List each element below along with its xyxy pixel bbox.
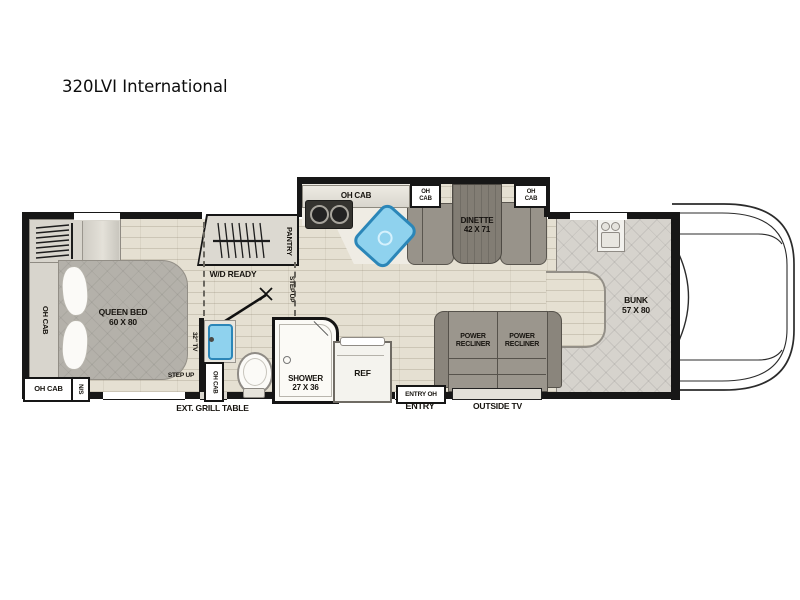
queen-bed-dims: 60 X 80 [88,318,158,328]
bedroom-oh-cab-side: OH CAB [29,262,61,378]
step-boundary-line [203,222,205,316]
window-bunk-top [570,212,627,220]
window-bedroom-bottom [103,392,185,400]
faucet-knob-icon [601,222,610,231]
dinette-dims: 42 X 71 [447,226,507,235]
ref-handle [340,337,385,346]
bunk-dims: 57 X 80 [600,306,672,316]
shower-label: SHOWER 27 X 36 [275,375,336,393]
recliner-left-label: POWER RECLINER [451,333,495,349]
hangers-icon [33,221,83,261]
faucet-knob-icon [611,222,620,231]
ref-shelf-line [337,355,384,356]
burner-icon [330,205,349,224]
slideout-wall-left [297,177,302,217]
wall-top-bunk-left [548,212,570,219]
outside-tv-bay [452,388,542,400]
queen-bed-label: QUEEN BED 60 X 80 [88,308,158,327]
dinette-label: DINETTE 42 X 71 [447,217,507,235]
pantry-unit: PANTRY [197,214,299,266]
bench-cushion-line [530,203,531,262]
vanity-sink [208,324,233,360]
bath-oh-cab-label: OH CAB [211,371,218,393]
outside-tv-label: OUTSIDE TV [455,402,540,412]
closet-shelf [82,221,119,261]
dinette-oh-cab-left-label: OH CAB [418,189,434,202]
bedroom-tv-label: 32" TV [185,322,198,362]
ref-label: REF [335,369,390,379]
refrigerator: REF [333,341,392,403]
wall-left [22,212,29,399]
nightstand-label: N/S [77,384,84,394]
sink-drain-icon [375,228,396,249]
pantry-interior: PANTRY [199,216,297,264]
cooktop-icon [305,200,353,229]
step-up-main: STEP UP [283,265,295,313]
recliner-right-label: POWER RECLINER [500,333,544,349]
recliner-unit: POWER RECLINER POWER RECLINER [434,311,560,390]
floorplan-page: 320LVI International BUNK 57 X 80 [0,0,800,600]
window-bedroom-top [74,212,120,220]
hangers-icon [212,218,274,262]
sink-basin-icon [601,232,620,248]
wardrobe-closet [29,219,121,264]
dinette-oh-cab-right-label: OH CAB [523,189,539,202]
dinette-table: DINETTE 42 X 71 [452,184,502,264]
wd-ready-label: W/D READY [198,270,268,280]
shower-door-knob-icon [283,356,291,364]
recliner-seat-right: POWER RECLINER [497,311,548,392]
bedroom-oh-cab-front: OH CAB [23,377,74,402]
cab-outline [672,192,798,402]
shower-dims: 27 X 36 [275,384,336,393]
bunk-label: BUNK 57 X 80 [600,296,672,315]
recliner-seat-left: POWER RECLINER [448,311,499,392]
entry-label: ENTRY [398,401,442,411]
ext-grill-table-label: EXT. GRILL TABLE [165,404,260,414]
wall-right-cab [671,212,680,400]
recliner-arm-right [546,311,562,388]
bedroom-oh-cab-side-label: OH CAB [41,306,49,334]
dinette-oh-cab-right: OH CAB [514,184,548,208]
bath-oh-cab: OH CAB [204,362,224,402]
toilet-base [243,388,265,398]
faucet-icon [209,337,214,342]
burner-icon [310,205,329,224]
pantry-label: PANTRY [285,220,293,262]
bedroom-oh-cab-front-label: OH CAB [34,385,62,393]
dinette-bench-right [500,202,547,265]
bench-cushion-line [422,204,423,262]
slideout-wall-top [297,177,549,184]
step-up-bedroom: STEP UP [158,372,204,379]
bunk-sink [597,219,625,252]
vanity [204,320,236,363]
nightstand: N/S [71,377,90,402]
dinette-oh-cab-left: OH CAB [410,184,441,208]
page-title: 320LVI International [62,77,228,96]
toilet-seat [243,358,267,386]
shower: SHOWER 27 X 36 [272,317,339,404]
entry-oh-label: ENTRY OH [405,391,437,398]
